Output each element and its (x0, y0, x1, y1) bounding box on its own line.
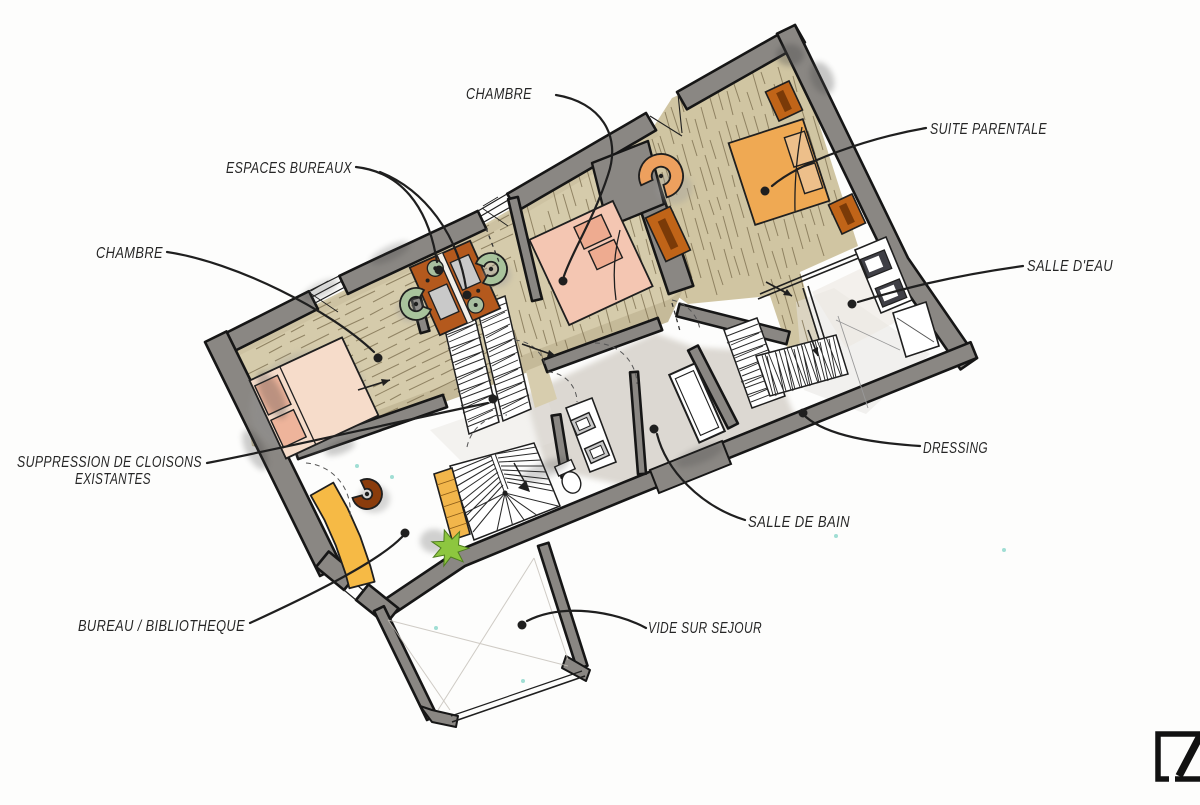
svg-text:CHAMBRE: CHAMBRE (466, 86, 532, 103)
svg-text:BUREAU / BIBLIOTHEQUE: BUREAU / BIBLIOTHEQUE (78, 618, 245, 635)
svg-text:ESPACES BUREAUX: ESPACES BUREAUX (226, 160, 353, 177)
svg-text:SALLE D'EAU: SALLE D'EAU (1027, 258, 1113, 275)
svg-text:SUPPRESSION DE CLOISONS: SUPPRESSION DE CLOISONS (17, 454, 202, 471)
svg-text:VIDE SUR SEJOUR: VIDE SUR SEJOUR (648, 620, 762, 637)
svg-text:SUITE PARENTALE: SUITE PARENTALE (930, 121, 1047, 138)
svg-text:SALLE DE BAIN: SALLE DE BAIN (748, 514, 850, 531)
svg-text:DRESSING: DRESSING (923, 440, 988, 457)
svg-text:CHAMBRE: CHAMBRE (96, 245, 163, 262)
svg-text:EXISTANTES: EXISTANTES (75, 471, 151, 488)
